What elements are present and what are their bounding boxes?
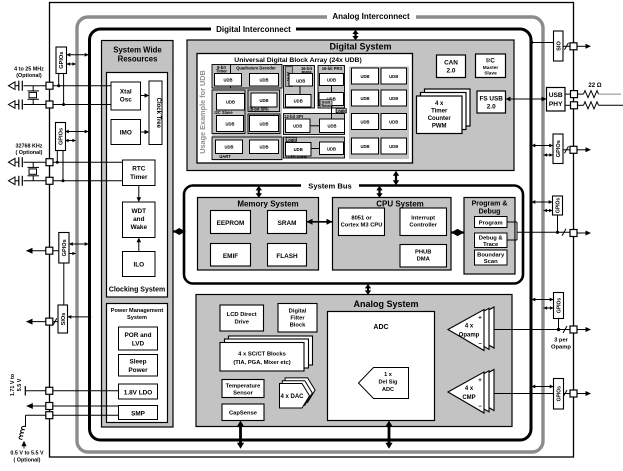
svg-text:ILO: ILO	[133, 262, 144, 269]
svg-text:2.0: 2.0	[447, 68, 456, 75]
svg-text:Trace: Trace	[483, 242, 499, 248]
svg-text:Universal Digital Block Array: Universal Digital Block Array (24x UDB)	[234, 57, 361, 64]
svg-text:Resources: Resources	[118, 55, 159, 64]
svg-text:EMIF: EMIF	[223, 253, 238, 260]
svg-text:Logic: Logic	[286, 137, 298, 142]
svg-text:−: −	[478, 342, 482, 348]
svg-text:( Optional): ( Optional)	[14, 458, 41, 464]
svg-text:UDB: UDB	[327, 146, 336, 151]
svg-text:UDB: UDB	[296, 79, 305, 84]
svg-text:4 x DAC: 4 x DAC	[280, 394, 304, 400]
svg-text:Sleep: Sleep	[129, 359, 146, 366]
svg-text:UDB: UDB	[389, 120, 398, 125]
svg-text:Del Sig: Del Sig	[379, 380, 399, 386]
svg-text:GPIOs: GPIOs	[557, 298, 563, 314]
svg-text:−: −	[478, 404, 482, 410]
svg-text:Memory System: Memory System	[237, 200, 298, 209]
svg-text:Master: Master	[483, 65, 499, 71]
svg-text:Osc: Osc	[120, 97, 133, 104]
svg-text:Filter: Filter	[290, 316, 305, 322]
svg-text:Slave: Slave	[484, 71, 497, 77]
svg-text:UART: UART	[219, 154, 231, 159]
svg-text:Usage Example for UDB: Usage Example for UDB	[198, 70, 207, 154]
svg-text:(TIA, PGA, Mixer etc): (TIA, PGA, Mixer etc)	[233, 360, 290, 366]
svg-text:16-bit PRS: 16-bit PRS	[322, 66, 343, 71]
svg-text:(Optional): (Optional)	[16, 73, 42, 79]
svg-text:USB: USB	[549, 92, 563, 99]
svg-text:LVD: LVD	[132, 341, 145, 348]
svg-text:1.8V LDO: 1.8V LDO	[124, 390, 152, 397]
svg-text:2.0: 2.0	[487, 104, 496, 111]
svg-text:and: and	[133, 216, 144, 223]
svg-text:GPIOs: GPIOs	[62, 239, 68, 256]
svg-text:0.5 V to 5.5 V: 0.5 V to 5.5 V	[10, 451, 44, 457]
svg-text:5.5 V: 5.5 V	[17, 378, 23, 391]
svg-text:Clock Tree: Clock Tree	[155, 98, 161, 129]
svg-text:UDB: UDB	[226, 100, 235, 105]
svg-text:CMP: CMP	[462, 395, 475, 401]
svg-text:SRAM: SRAM	[278, 220, 297, 227]
svg-text:UDB: UDB	[389, 96, 398, 101]
svg-text:SIOs: SIOs	[61, 313, 67, 326]
svg-text:UDB: UDB	[225, 122, 234, 127]
svg-text:PHY: PHY	[549, 101, 563, 108]
svg-text:UDB: UDB	[360, 96, 369, 101]
svg-text:Timer: Timer	[216, 69, 227, 74]
svg-text:4 to 25 MHz: 4 to 25 MHz	[14, 67, 44, 73]
svg-text:FLASH: FLASH	[276, 253, 298, 260]
svg-text:Clocking System: Clocking System	[109, 287, 165, 294]
svg-text:Quadrature Decoder: Quadrature Decoder	[236, 65, 276, 70]
svg-text:EEPROM: EEPROM	[217, 220, 245, 227]
svg-text:Debug: Debug	[479, 209, 501, 216]
svg-text:UDB: UDB	[327, 77, 336, 82]
svg-text:UDB: UDB	[293, 124, 302, 129]
svg-text:4 x SC/CT Blocks: 4 x SC/CT Blocks	[238, 352, 286, 358]
svg-text:Counter: Counter	[428, 116, 452, 122]
svg-text:4 x: 4 x	[435, 101, 444, 107]
svg-text:CAN: CAN	[444, 60, 458, 67]
svg-text:22 Ω: 22 Ω	[588, 83, 601, 89]
svg-text:System Bus: System Bus	[308, 182, 351, 191]
svg-text:Power Management: Power Management	[111, 308, 164, 314]
svg-text:Sensor: Sensor	[233, 391, 253, 397]
svg-text:WDT: WDT	[132, 208, 147, 215]
svg-text:UDB: UDB	[259, 78, 268, 83]
svg-text:I2C Slave: I2C Slave	[214, 110, 233, 115]
svg-text:Power: Power	[128, 367, 148, 374]
svg-text:+: +	[478, 378, 482, 384]
svg-text:GPIOs: GPIOs	[59, 128, 65, 145]
svg-text:Timer: Timer	[431, 109, 448, 115]
svg-text:Xtal: Xtal	[120, 89, 132, 96]
svg-text:LCD Direct: LCD Direct	[227, 312, 257, 318]
svg-text:UDB: UDB	[389, 144, 398, 149]
svg-text:GPIOs: GPIOs	[557, 386, 563, 402]
svg-text:POR and: POR and	[125, 332, 152, 339]
svg-text:UDB: UDB	[223, 78, 232, 83]
svg-text:SIO: SIO	[556, 41, 562, 51]
svg-text:GPIOs: GPIOs	[59, 52, 65, 69]
svg-text:Block: Block	[290, 323, 307, 329]
svg-text:GPIOs: GPIOs	[556, 140, 562, 157]
svg-text:I2C: I2C	[486, 57, 495, 64]
svg-text:Logic: Logic	[336, 108, 348, 113]
svg-text:Temperature: Temperature	[226, 384, 261, 390]
svg-text:PWM: PWM	[432, 124, 447, 130]
svg-text:UDB: UDB	[259, 122, 268, 127]
svg-text:4 x: 4 x	[465, 386, 474, 392]
svg-text:Interrupt: Interrupt	[411, 216, 435, 222]
svg-text:Digital Interconnect: Digital Interconnect	[216, 25, 291, 34]
svg-text:Drive: Drive	[234, 320, 249, 326]
svg-text:Debug &: Debug &	[479, 236, 503, 242]
svg-text:( Optional): ( Optional)	[16, 150, 43, 156]
svg-text:IMO: IMO	[120, 130, 132, 137]
svg-text:Boundary: Boundary	[477, 253, 505, 259]
svg-text:UDB: UDB	[294, 147, 303, 152]
svg-text:UDB: UDB	[259, 145, 268, 150]
svg-text:Wake: Wake	[131, 224, 148, 231]
svg-text:3 per: 3 per	[554, 338, 569, 344]
svg-text:Controller: Controller	[409, 223, 437, 229]
svg-text:Timer: Timer	[321, 104, 331, 108]
svg-text:Opamp: Opamp	[459, 333, 480, 339]
svg-text:CPU System: CPU System	[376, 200, 424, 209]
svg-text:ADC: ADC	[373, 324, 388, 331]
svg-text:System: System	[127, 315, 147, 321]
svg-text:System Wide: System Wide	[113, 46, 162, 55]
svg-text:Program &: Program &	[472, 201, 508, 208]
svg-text:+: +	[478, 316, 482, 322]
svg-text:Digital: Digital	[289, 309, 307, 315]
svg-text:Timer: Timer	[130, 174, 148, 181]
svg-text:8051 or: 8051 or	[351, 216, 372, 222]
svg-text:GPIOs: GPIOs	[556, 198, 562, 214]
svg-text:RTC: RTC	[132, 166, 146, 173]
svg-text:FS USB: FS USB	[479, 96, 503, 103]
svg-text:UDB: UDB	[224, 145, 233, 150]
svg-text:Digital System: Digital System	[329, 42, 391, 52]
svg-text:4 x: 4 x	[465, 324, 474, 330]
svg-text:UDB: UDB	[389, 74, 398, 79]
svg-text:SMP: SMP	[131, 411, 146, 418]
svg-text:UDB: UDB	[259, 98, 268, 103]
svg-text:Cortex M3 CPU: Cortex M3 CPU	[341, 223, 383, 229]
svg-text:1.71 V to: 1.71 V to	[10, 373, 16, 396]
svg-text:UDB: UDB	[360, 74, 369, 79]
svg-text:Analog System: Analog System	[353, 299, 418, 309]
svg-text:UDB: UDB	[294, 99, 303, 104]
svg-text:1 x: 1 x	[384, 372, 393, 378]
svg-text:UDB: UDB	[327, 124, 336, 129]
svg-text:Scan: Scan	[484, 259, 498, 265]
svg-text:Analog Interconnect: Analog Interconnect	[332, 12, 410, 21]
svg-text:Program: Program	[479, 221, 503, 227]
svg-text:32768 KHz: 32768 KHz	[16, 144, 43, 150]
svg-text:CapSense: CapSense	[229, 411, 258, 417]
svg-text:12-bit PWM: 12-bit PWM	[285, 154, 308, 159]
svg-text:Opamp: Opamp	[551, 345, 571, 351]
svg-text:UDB: UDB	[360, 120, 369, 125]
svg-text:UDB: UDB	[360, 144, 369, 149]
svg-text:12-bit SPI: 12-bit SPI	[284, 114, 303, 119]
svg-text:PHUB: PHUB	[415, 250, 431, 256]
svg-text:ADC: ADC	[382, 387, 394, 393]
svg-text:DMA: DMA	[417, 257, 431, 263]
